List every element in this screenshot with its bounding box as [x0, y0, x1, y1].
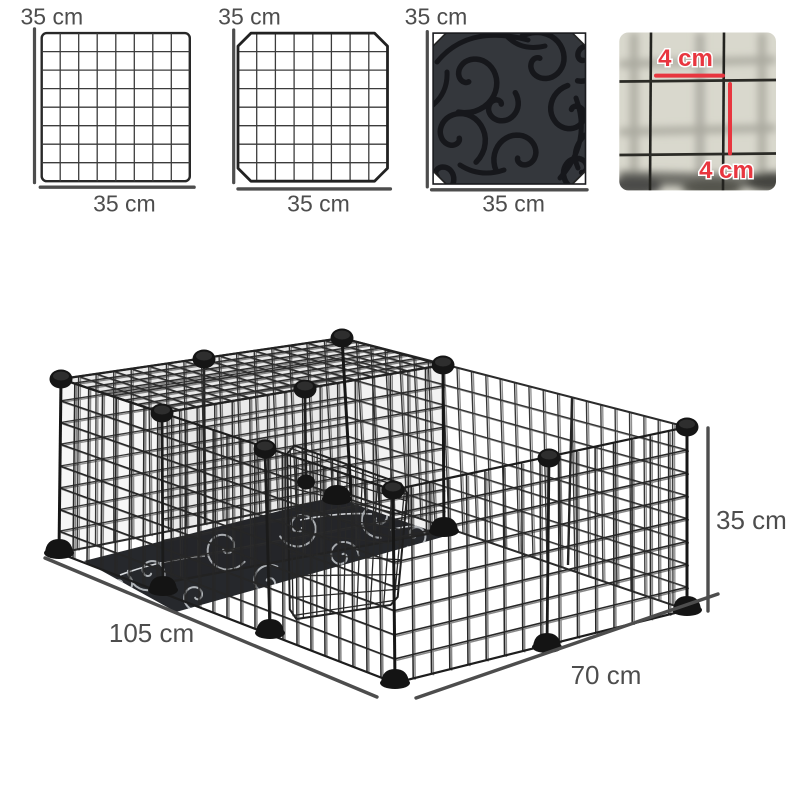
svg-text:35 cm: 35 cm [287, 191, 350, 217]
svg-text:35 cm: 35 cm [93, 191, 156, 217]
svg-text:35 cm: 35 cm [482, 191, 545, 217]
svg-text:4 cm: 4 cm [699, 157, 754, 184]
svg-text:35 cm: 35 cm [405, 4, 468, 30]
svg-text:105 cm: 105 cm [109, 618, 194, 648]
svg-text:35 cm: 35 cm [716, 505, 787, 535]
svg-text:35 cm: 35 cm [20, 4, 83, 30]
svg-text:4 cm: 4 cm [658, 45, 713, 72]
svg-text:35 cm: 35 cm [218, 4, 281, 30]
svg-text:70 cm: 70 cm [571, 660, 642, 690]
